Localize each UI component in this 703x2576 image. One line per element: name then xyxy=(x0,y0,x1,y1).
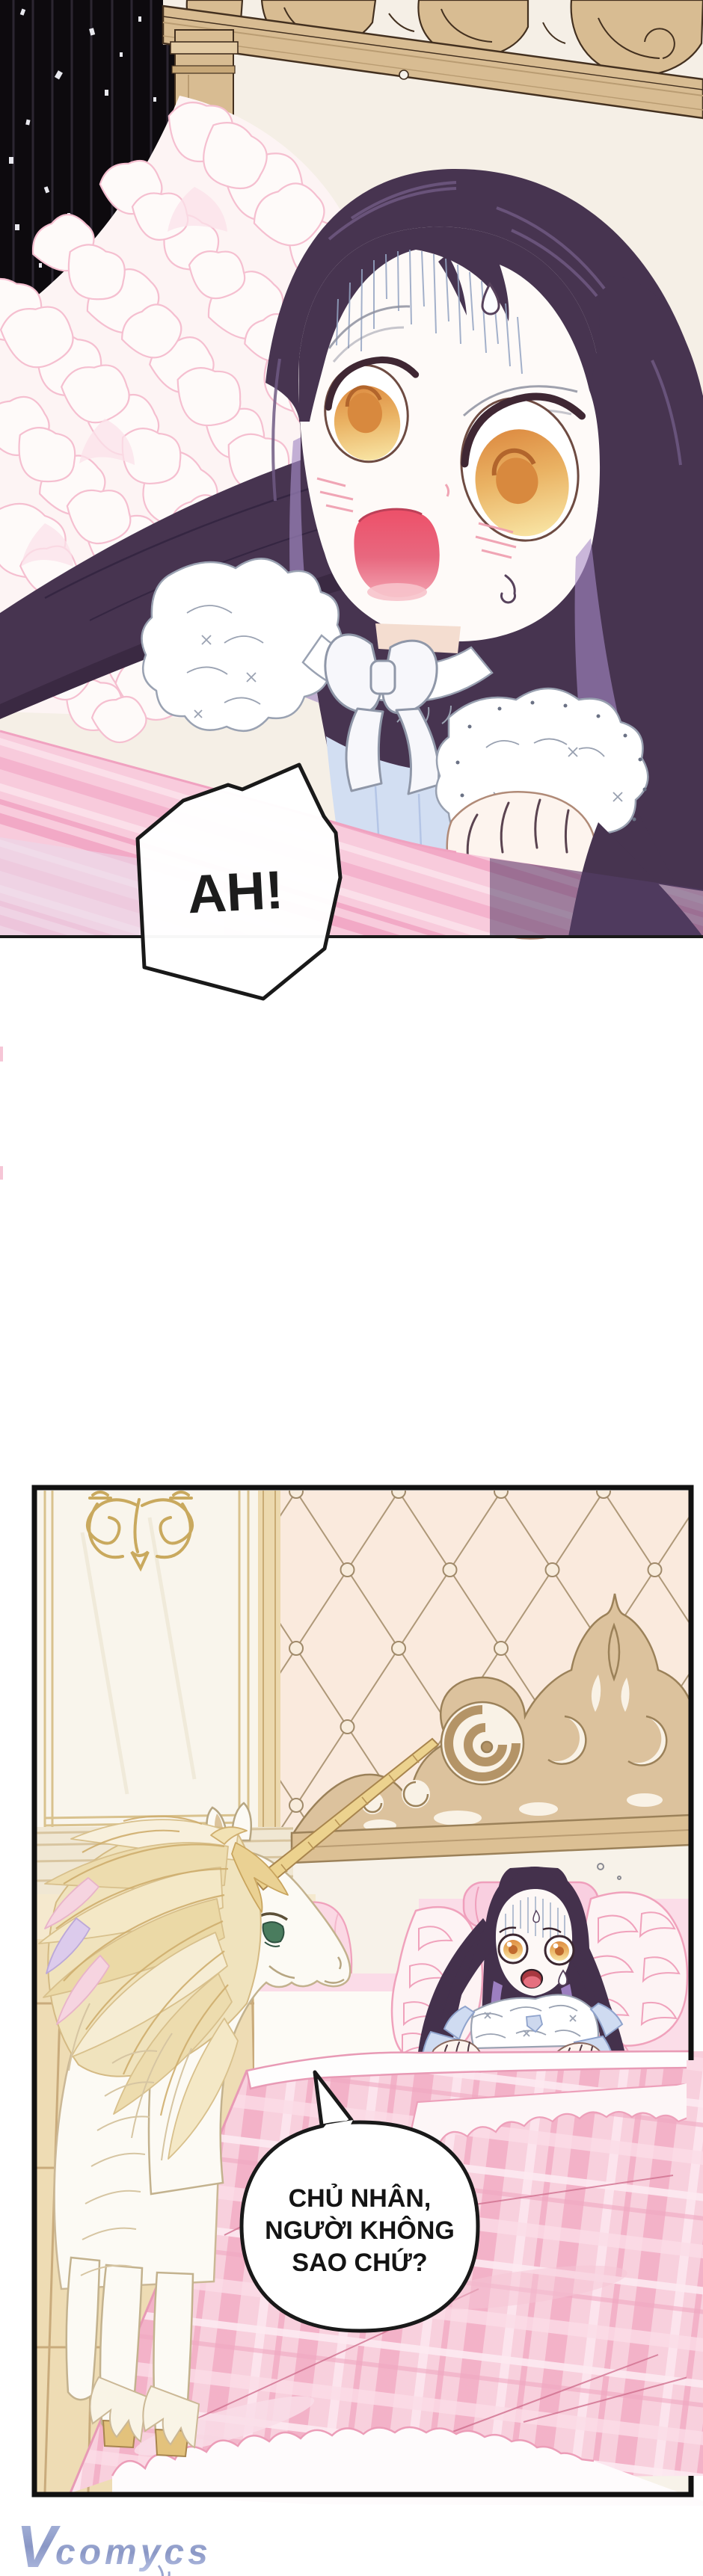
svg-text:NGƯỜI KHÔNG: NGƯỜI KHÔNG xyxy=(265,2216,455,2245)
svg-text:V: V xyxy=(16,2513,61,2576)
svg-text:AH!: AH! xyxy=(186,860,285,925)
svg-text:comycs: comycs xyxy=(55,2533,212,2572)
svg-text:SAO CHỨ?: SAO CHỨ? xyxy=(292,2249,427,2277)
svg-text:CHỦ NHÂN,: CHỦ NHÂN, xyxy=(289,2184,432,2213)
